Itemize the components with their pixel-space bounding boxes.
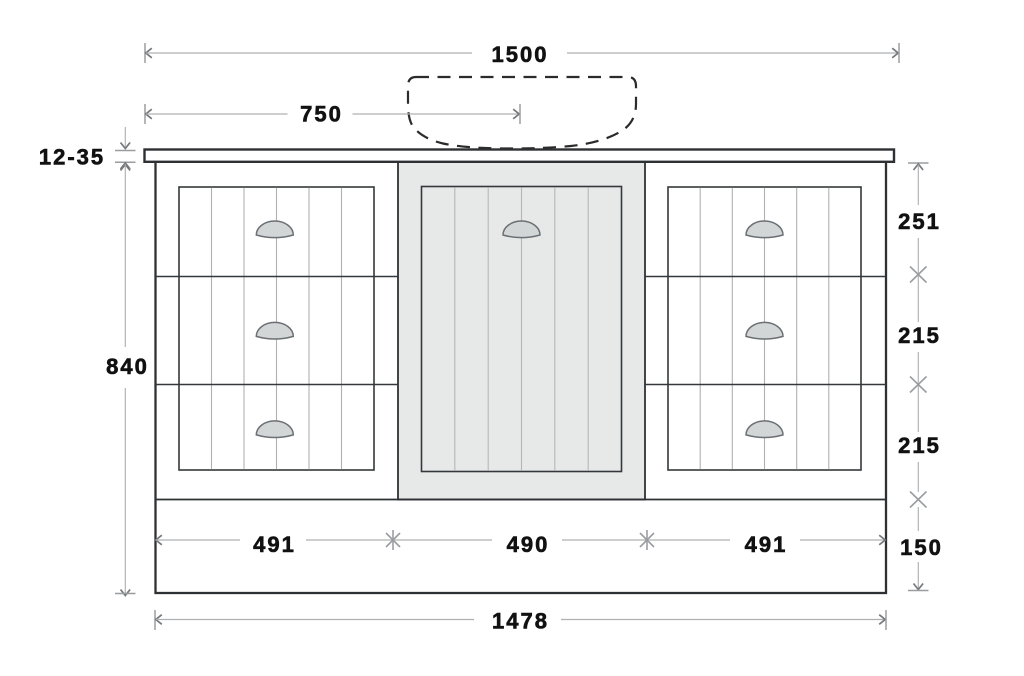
svg-text:490: 490 bbox=[507, 532, 550, 557]
svg-text:12-35: 12-35 bbox=[39, 145, 105, 170]
svg-text:251: 251 bbox=[898, 209, 941, 234]
svg-text:491: 491 bbox=[745, 532, 788, 557]
svg-text:215: 215 bbox=[898, 433, 941, 458]
svg-text:150: 150 bbox=[900, 535, 943, 560]
svg-text:1500: 1500 bbox=[492, 42, 549, 67]
svg-text:840: 840 bbox=[106, 354, 149, 379]
svg-text:491: 491 bbox=[253, 532, 296, 557]
svg-text:750: 750 bbox=[300, 102, 343, 127]
svg-text:1478: 1478 bbox=[492, 609, 549, 634]
svg-text:215: 215 bbox=[898, 323, 941, 348]
